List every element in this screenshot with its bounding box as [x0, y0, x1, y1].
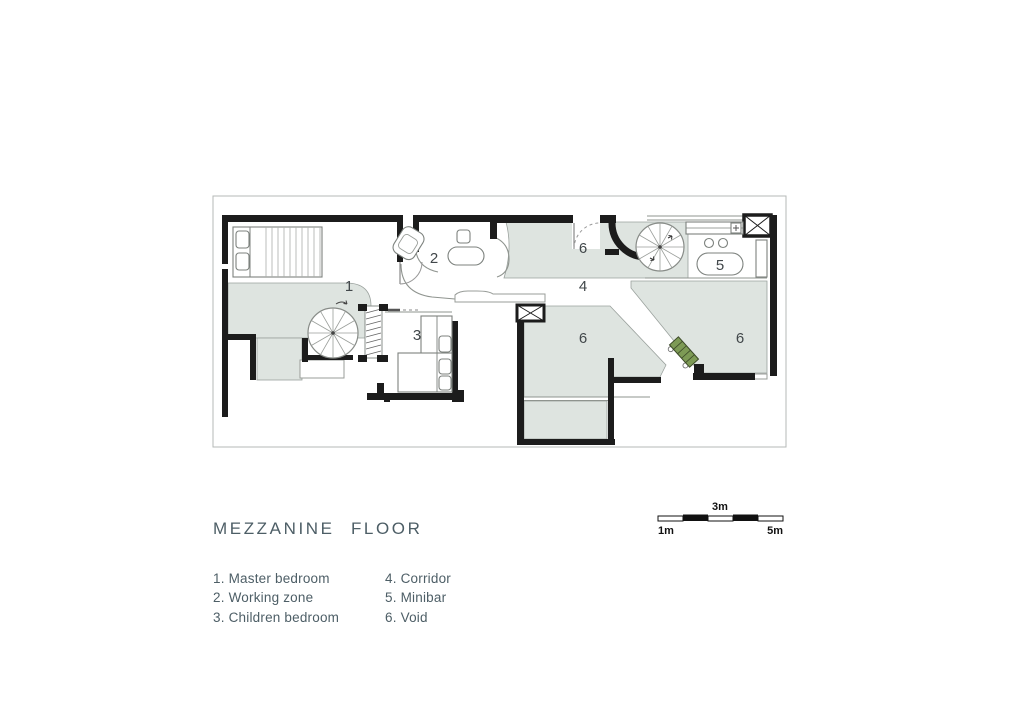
stair-landing: [300, 360, 344, 378]
legend-column-1: 1. Master bedroom 2. Working zone 3. Chi…: [213, 569, 339, 627]
room-label-5: 5: [716, 257, 724, 274]
scale-bar: 3m 1m 5m: [658, 501, 783, 537]
scale-label-1m: 1m: [658, 525, 674, 537]
scale-segment-black: [683, 515, 708, 522]
legend-item-corridor: 4. Corridor: [385, 569, 451, 588]
void-center-lower: [524, 401, 607, 439]
shaft-box-topright: [744, 215, 771, 236]
room-label-6b: 6: [579, 330, 587, 347]
desk-chair: [457, 230, 470, 243]
scale-segment-black: [733, 515, 758, 522]
floor-plan-sheet: 1 2 3 4 5 6 6 6 3m 1m 5m MEZZANINE FLOOR…: [0, 0, 1024, 724]
legend-item-master-bedroom: 1. Master bedroom: [213, 569, 339, 588]
window-bottom-right: [754, 374, 767, 379]
stool: [705, 239, 714, 248]
pillow: [439, 336, 451, 352]
floor-plan-drawing: 1 2 3 4 5 6 6 6 3m 1m 5m: [0, 0, 1024, 724]
legend-item-void: 6. Void: [385, 608, 451, 627]
spiral-stair-right: [636, 223, 684, 271]
stool: [719, 239, 728, 248]
room-label-4: 4: [579, 278, 587, 295]
page-title: MEZZANINE FLOOR: [213, 519, 423, 539]
pillow: [439, 376, 451, 390]
room-label-6a: 6: [579, 240, 587, 257]
legend-column-2: 4. Corridor 5. Minibar 6. Void: [385, 569, 451, 627]
room-label-1: 1: [345, 278, 353, 295]
master-bed: [233, 227, 322, 277]
shaft-box-corridor: [517, 305, 544, 321]
pillow: [236, 253, 249, 270]
legend-item-minibar: 5. Minibar: [385, 588, 451, 607]
void-left-lower: [257, 338, 302, 380]
room-label-3: 3: [413, 327, 421, 344]
legend-item-children-bedroom: 3. Children bedroom: [213, 608, 339, 627]
side-counter: [756, 240, 767, 277]
left-wall-gap: [221, 264, 229, 269]
pillow: [236, 231, 249, 248]
scale-label-3m: 3m: [712, 501, 728, 513]
legend-item-working-zone: 2. Working zone: [213, 588, 339, 607]
room-label-2: 2: [430, 250, 438, 267]
wardrobe-hatch: [365, 306, 382, 358]
pillow: [439, 359, 451, 374]
scale-label-5m: 5m: [767, 525, 783, 537]
room-label-6c: 6: [736, 330, 744, 347]
